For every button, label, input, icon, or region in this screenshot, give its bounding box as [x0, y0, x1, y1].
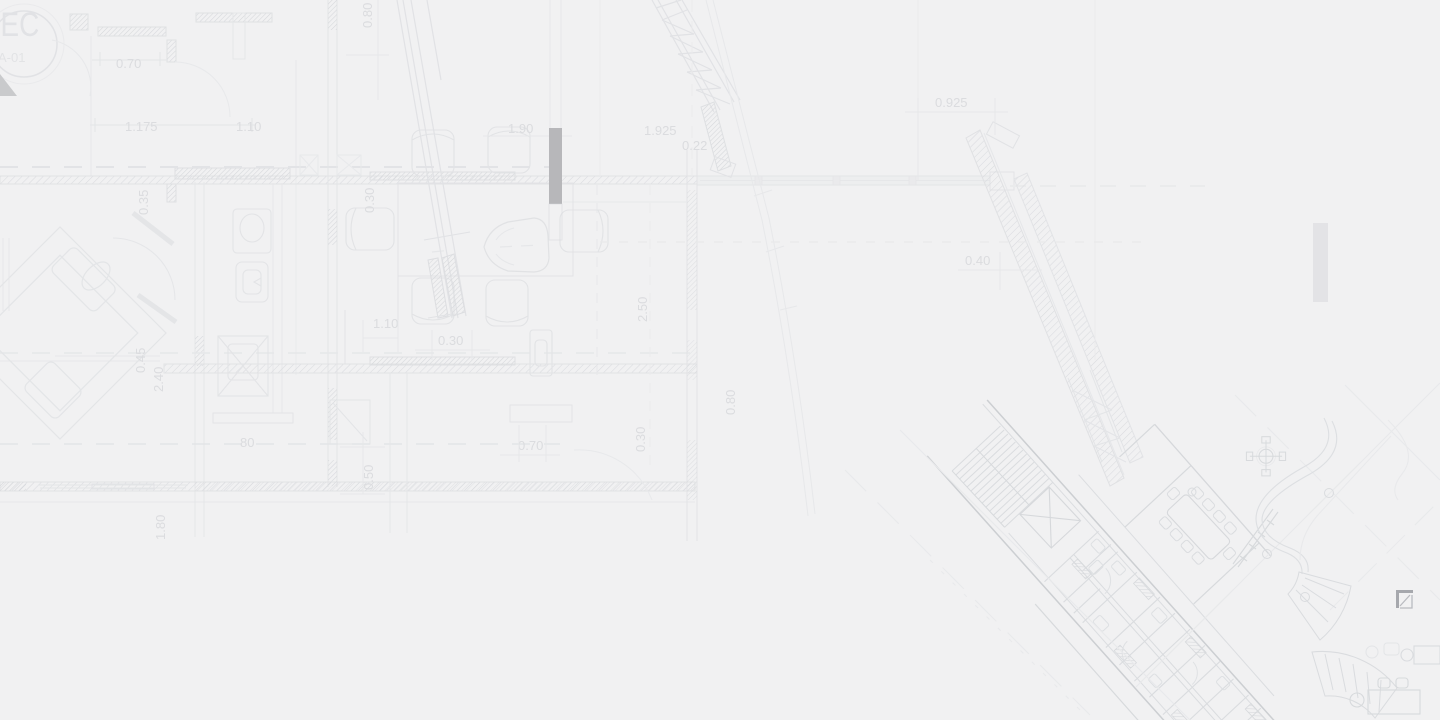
svg-text:80: 80 — [240, 435, 254, 450]
svg-text:0.30: 0.30 — [633, 427, 648, 452]
svg-text:0.22: 0.22 — [682, 138, 707, 153]
svg-text:0.30: 0.30 — [438, 333, 463, 348]
svg-text:1.80: 1.80 — [153, 515, 168, 540]
svg-text:2.40: 2.40 — [151, 367, 166, 392]
svg-text:0.40: 0.40 — [965, 253, 990, 268]
svg-text:2.50: 2.50 — [635, 297, 650, 322]
svg-text:0.925: 0.925 — [935, 95, 968, 110]
svg-text:1.90: 1.90 — [508, 121, 533, 136]
svg-text:0.45: 0.45 — [133, 348, 148, 373]
svg-text:0.30: 0.30 — [362, 188, 377, 213]
svg-text:1.10: 1.10 — [373, 316, 398, 331]
svg-text:A-01: A-01 — [0, 50, 25, 65]
svg-text:0.80: 0.80 — [360, 3, 375, 28]
svg-text:1.10: 1.10 — [236, 119, 261, 134]
svg-text:0.35: 0.35 — [136, 190, 151, 215]
svg-text:1.175: 1.175 — [125, 119, 158, 134]
svg-text:SEC: SEC — [0, 5, 39, 43]
svg-text:1.925: 1.925 — [644, 123, 677, 138]
svg-text:0.70: 0.70 — [518, 438, 543, 453]
svg-text:0.80: 0.80 — [723, 390, 738, 415]
svg-text:0.70: 0.70 — [116, 56, 141, 71]
